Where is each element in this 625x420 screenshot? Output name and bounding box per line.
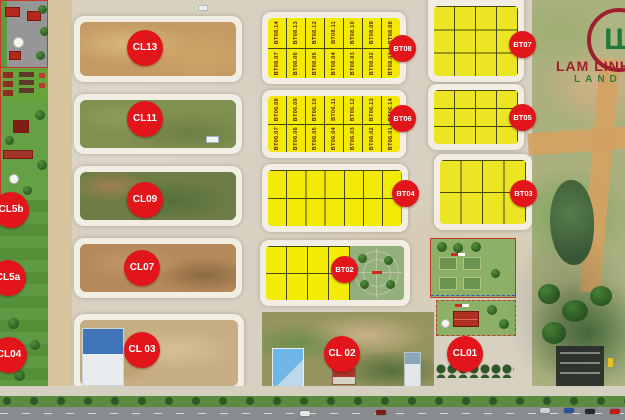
tree bbox=[358, 254, 367, 263]
plot-cell: BT06.03 bbox=[344, 125, 363, 153]
plot-cell: BT06.11 bbox=[325, 96, 344, 124]
bt08-top-row: BT08.14BT08.13BT08.12BT08.11BT08.10BT08.… bbox=[268, 18, 400, 49]
plot-cell: BT08.11 bbox=[325, 18, 344, 48]
dirt-road-vertical bbox=[48, 0, 72, 392]
plot-cell: BT06.12 bbox=[344, 96, 363, 124]
plot-label: BT06.10 bbox=[312, 98, 318, 121]
plot-label: BT06.06 bbox=[293, 127, 299, 150]
bt08-bottom-row: BT08.07BT08.06BT08.05BT08.04BT08.03BT08.… bbox=[268, 49, 400, 79]
plot-cell: BT06.08 bbox=[268, 96, 287, 124]
plot-label: BT08.12 bbox=[312, 21, 318, 44]
plot-cell: BT06.06 bbox=[287, 125, 306, 153]
plot-cell: BT06.09 bbox=[287, 96, 306, 124]
plot-label: BT06.05 bbox=[312, 127, 318, 150]
warehouse-building bbox=[82, 328, 124, 386]
plot-cell: BT06.07 bbox=[268, 125, 287, 153]
tree bbox=[487, 305, 497, 315]
marker-bt03: BT03 bbox=[510, 180, 537, 207]
plot-cell: BT06.05 bbox=[306, 125, 325, 153]
plot-cell: BT08.04 bbox=[325, 49, 344, 79]
tree bbox=[8, 318, 19, 329]
plot-label: BT08.07 bbox=[274, 52, 280, 75]
plot-cell: BT08.02 bbox=[363, 49, 382, 79]
plot-label: BT08.03 bbox=[350, 52, 356, 75]
aerial-map: BT08.14BT08.13BT08.12BT08.11BT08.10BT08.… bbox=[0, 0, 625, 420]
block-bt08: BT08.14BT08.13BT08.12BT08.11BT08.10BT08.… bbox=[262, 12, 406, 84]
plot-label: BT06.12 bbox=[350, 98, 356, 121]
plot-cell: BT08.06 bbox=[287, 49, 306, 79]
marker-cl13: CL13 bbox=[127, 30, 163, 66]
legend-bar bbox=[455, 304, 469, 307]
plot-cell: BT08.07 bbox=[268, 49, 287, 79]
bt06-top-row: BT06.08BT06.09BT06.10BT06.11BT06.12BT06.… bbox=[268, 96, 400, 125]
plot-cell: BT08.13 bbox=[287, 18, 306, 48]
plot-cell: BT06.04 bbox=[325, 125, 344, 153]
park-building bbox=[13, 120, 29, 133]
park-garden bbox=[0, 102, 48, 200]
marker-bt07: BT07 bbox=[509, 31, 536, 58]
tree bbox=[384, 256, 393, 265]
plot-cell: BT08.09 bbox=[363, 18, 382, 48]
marker-bt08: BT08 bbox=[389, 35, 416, 62]
logo-company-name: LAM LINH bbox=[556, 58, 625, 74]
legend-bar bbox=[451, 253, 465, 256]
car bbox=[564, 408, 574, 413]
marker-bt04: BT04 bbox=[392, 180, 419, 207]
car bbox=[585, 409, 595, 414]
plot-label: BT08.06 bbox=[293, 52, 299, 75]
plot-label: BT08.02 bbox=[369, 52, 375, 75]
plot-label: BT08.04 bbox=[331, 52, 337, 75]
park-plaza bbox=[0, 0, 48, 68]
car bbox=[540, 408, 550, 413]
marker-cl07: CL07 bbox=[124, 250, 160, 286]
plot-label: BT06.01 bbox=[388, 127, 394, 150]
tree bbox=[360, 280, 369, 289]
tree bbox=[23, 186, 32, 195]
logo-monogram: LL bbox=[604, 23, 625, 57]
marker-bt05: BT05 bbox=[509, 104, 536, 131]
car bbox=[300, 411, 310, 416]
road-median-trees bbox=[0, 396, 625, 407]
plot-label: BT08.13 bbox=[293, 21, 299, 44]
cloud-shadow bbox=[505, 225, 625, 395]
plot-label: BT08.10 bbox=[350, 21, 356, 44]
car bbox=[610, 409, 620, 414]
plot-label: BT08.11 bbox=[331, 21, 337, 44]
tree bbox=[491, 269, 500, 278]
plot-label: BT08.14 bbox=[274, 21, 280, 44]
tree bbox=[437, 242, 447, 252]
tree bbox=[38, 5, 47, 14]
plot-label: BT06.13 bbox=[369, 98, 375, 121]
park-long-building bbox=[3, 150, 33, 159]
marker-cl02: CL 02 bbox=[324, 336, 360, 372]
plot-label: BT06.02 bbox=[369, 127, 375, 150]
plot-cell: BT08.10 bbox=[344, 18, 363, 48]
van bbox=[198, 5, 208, 11]
plot-label: BT06.11 bbox=[331, 98, 337, 121]
tree bbox=[35, 110, 45, 120]
red-roof-pavilion bbox=[453, 311, 479, 327]
marker-cl09: CL09 bbox=[127, 182, 163, 218]
plot-label: BT06.03 bbox=[350, 127, 356, 150]
park-circle bbox=[441, 319, 450, 328]
van bbox=[206, 136, 219, 143]
cl01-park-upper bbox=[430, 238, 516, 298]
marker-bt02: BT02 bbox=[331, 256, 358, 283]
plot-cell: BT08.14 bbox=[268, 18, 287, 48]
blue-dashed-line bbox=[431, 295, 515, 296]
block-bt06: BT06.08BT06.09BT06.10BT06.11BT06.12BT06.… bbox=[262, 90, 406, 158]
tall-building bbox=[404, 352, 421, 390]
tree bbox=[386, 280, 395, 289]
plot-cell: BT08.05 bbox=[306, 49, 325, 79]
marker-cl03: CL 03 bbox=[124, 332, 160, 368]
car bbox=[376, 410, 386, 415]
marker-bt06: BT06 bbox=[389, 105, 416, 132]
plot-label: BT08.05 bbox=[312, 52, 318, 75]
park-stalls bbox=[0, 68, 48, 102]
bt06-bottom-row: BT06.07BT06.06BT06.05BT06.04BT06.03BT06.… bbox=[268, 125, 400, 153]
plot-cell: BT06.13 bbox=[363, 96, 382, 124]
plot-label: BT06.04 bbox=[331, 127, 337, 150]
logo-division: LAND bbox=[574, 74, 622, 85]
lane-marking bbox=[0, 413, 625, 414]
marker-cl01: CL01 bbox=[447, 336, 483, 372]
pavilion-roof bbox=[5, 7, 20, 17]
plot-cell: BT08.03 bbox=[344, 49, 363, 79]
glass-roof-building bbox=[272, 348, 304, 388]
pavilion-roof bbox=[9, 51, 21, 60]
plot-label: BT08.09 bbox=[369, 21, 375, 44]
marker-cl11: CL11 bbox=[127, 101, 163, 137]
tree bbox=[37, 160, 47, 170]
tree bbox=[36, 51, 45, 60]
tree bbox=[5, 136, 14, 145]
tree bbox=[453, 243, 463, 253]
tree bbox=[30, 340, 40, 350]
tree bbox=[471, 242, 481, 252]
plot-cell: BT08.12 bbox=[306, 18, 325, 48]
park-center-label bbox=[372, 271, 382, 274]
plot-label: BT06.09 bbox=[293, 98, 299, 121]
cl01-park-lower bbox=[436, 300, 516, 336]
plot-label: BT06.07 bbox=[274, 127, 280, 150]
bt02-park bbox=[350, 246, 404, 300]
block-bt04 bbox=[262, 164, 408, 232]
plot-cell: BT06.10 bbox=[306, 96, 325, 124]
park-circle bbox=[9, 174, 19, 184]
plot-label: BT06.08 bbox=[274, 98, 280, 121]
plot-cell: BT06.02 bbox=[363, 125, 382, 153]
plaza-circle bbox=[13, 37, 24, 48]
